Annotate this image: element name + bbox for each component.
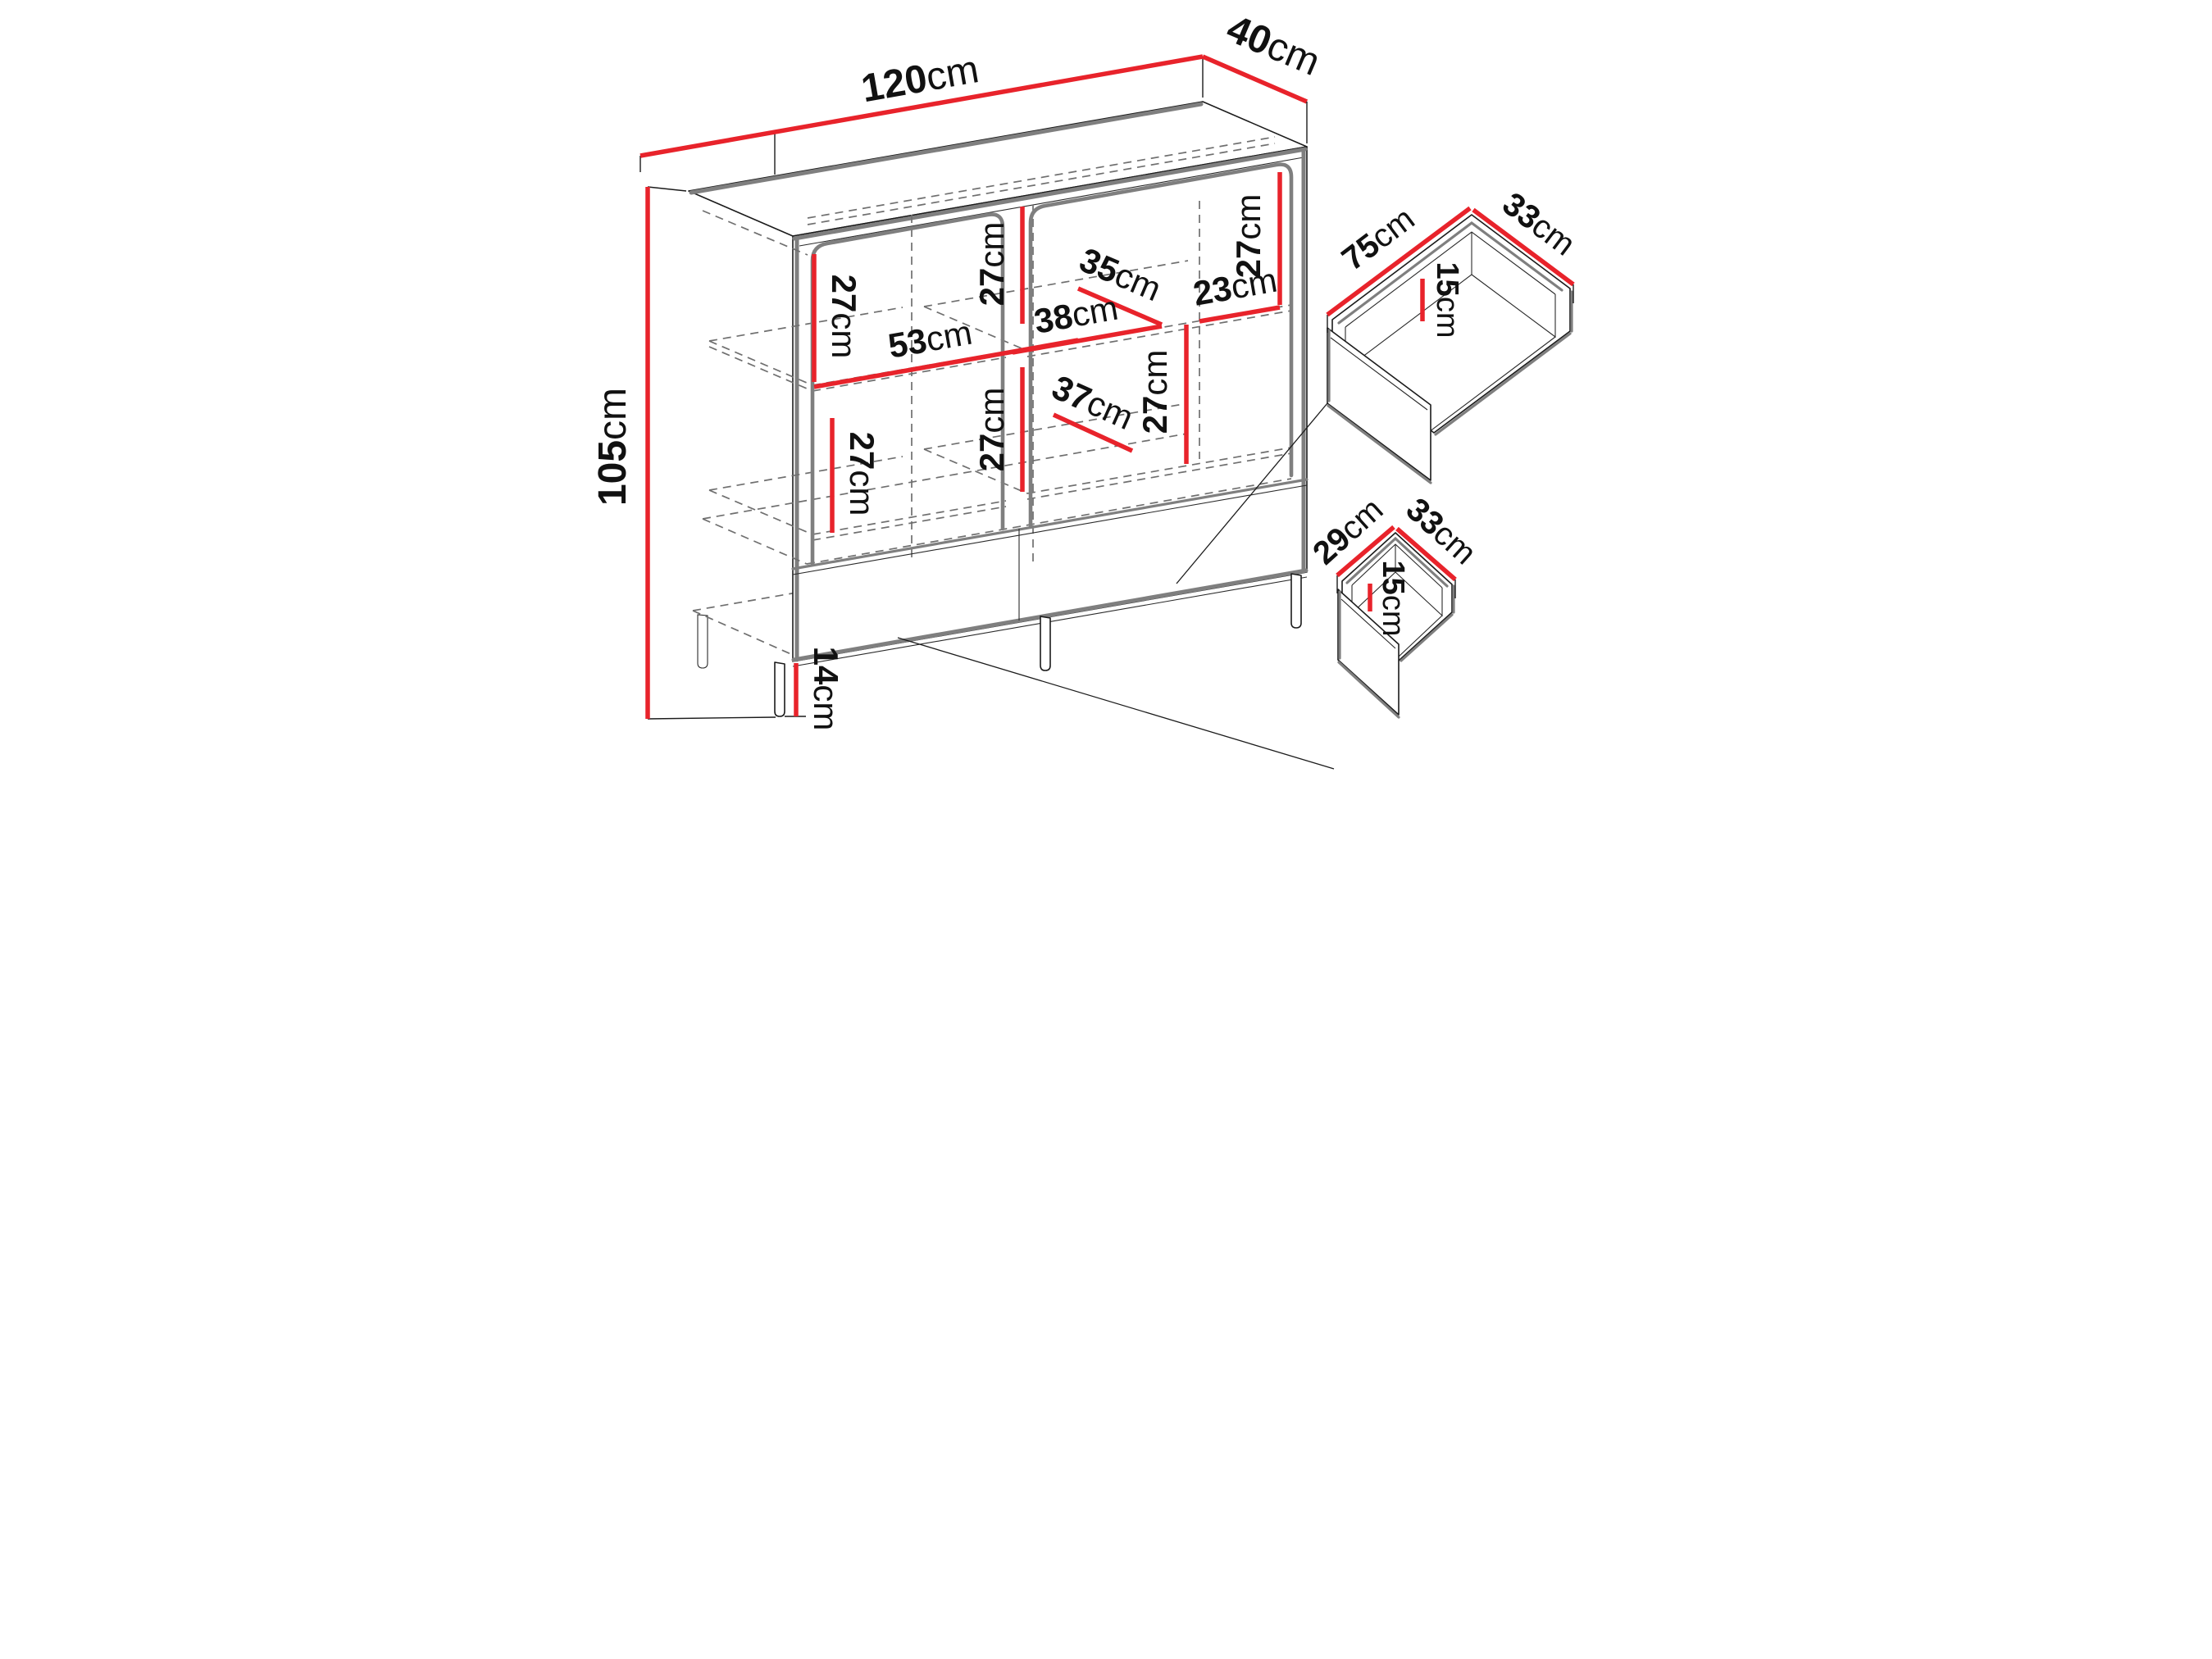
dim-label-right-upper-height: 27cm <box>1229 194 1268 279</box>
diagram-page: 120cm 40cm 105cm 14cm 27cm 53cm 27cm 27c… <box>553 0 1659 829</box>
dim-label-drawer-small-height: 15cm <box>1376 561 1410 637</box>
dimension-cabinet-height: 105cm <box>591 187 776 719</box>
drawer-small-drawing: 29cm 33cm 15cm <box>1306 491 1483 717</box>
dim-label-leg-height: 14cm <box>807 647 845 731</box>
drawer-large-drawing: 75cm 33cm 15cm <box>1327 186 1582 483</box>
dim-label-right-lower-height: 27cm <box>1136 350 1174 434</box>
dim-label-center-lower-height: 27cm <box>972 388 1011 472</box>
dim-label-left-upper-height: 27cm <box>825 275 863 359</box>
dim-label-cabinet-width: 120cm <box>858 48 981 111</box>
dimension-drawing: 120cm 40cm 105cm 14cm 27cm 53cm 27cm 27c… <box>553 0 1659 829</box>
dim-label-drawer-large-height: 15cm <box>1430 262 1464 339</box>
dim-label-center-upper-height: 27cm <box>972 222 1011 307</box>
dimension-drawer-small-height: 15cm <box>1370 561 1410 637</box>
dim-label-cabinet-height: 105cm <box>591 388 635 506</box>
leader-line-small-drawer <box>898 638 1334 769</box>
dim-label-left-lower-height: 27cm <box>843 432 881 516</box>
